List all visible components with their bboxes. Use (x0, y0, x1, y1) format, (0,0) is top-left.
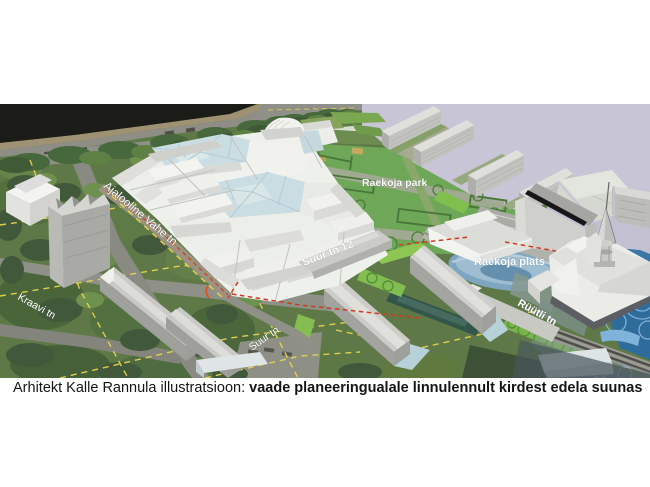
svg-text:Raekoja park: Raekoja park (362, 177, 428, 189)
svg-text:Raekoja plats: Raekoja plats (474, 256, 545, 268)
